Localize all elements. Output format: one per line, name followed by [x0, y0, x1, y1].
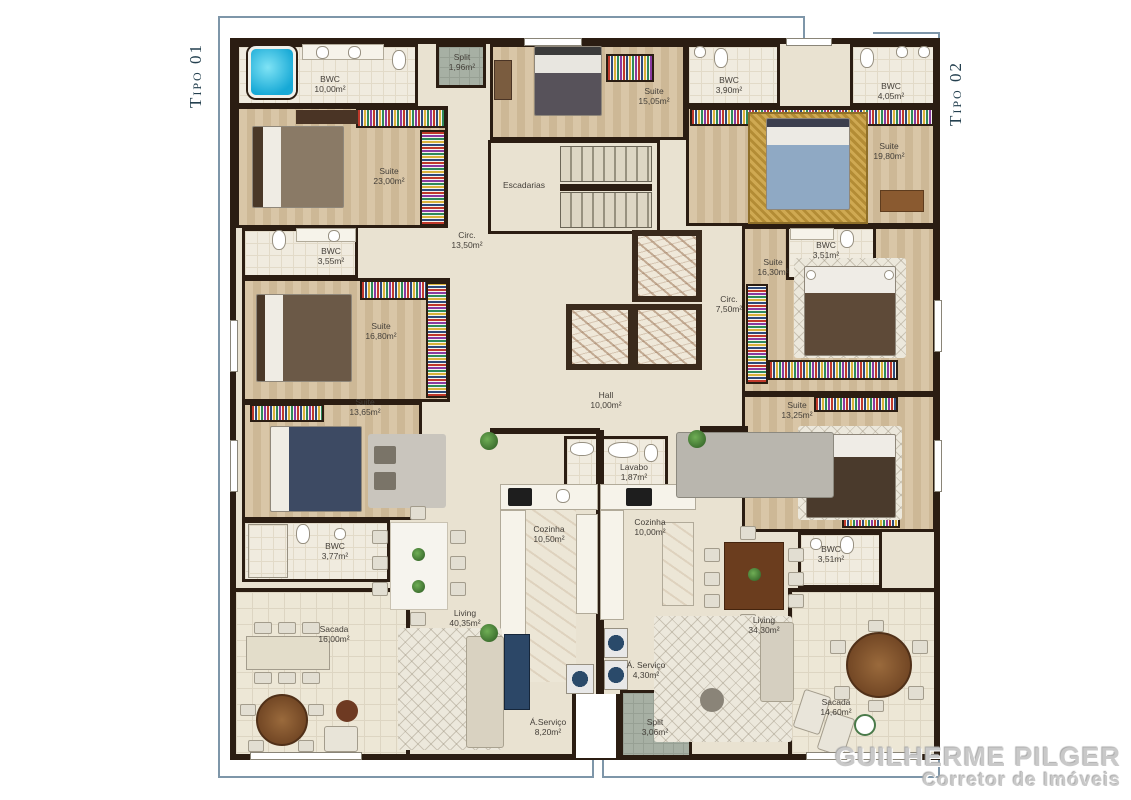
label-bwc390-area: 3,90m²	[716, 85, 742, 95]
table-plant-2	[412, 580, 425, 593]
label-bwc351a-area: 3,51m²	[813, 250, 839, 260]
tipo01-label: Tipo 01	[186, 18, 206, 108]
label-bwc405-name: BWC	[878, 81, 904, 91]
sacada16-pouf	[336, 700, 358, 722]
table-plant-3430	[748, 568, 761, 581]
label-suite2300-name: Suite	[373, 166, 404, 176]
chair-l4035-4	[450, 530, 466, 544]
sacada16-rchair-2	[308, 704, 324, 716]
label-aserv430-name: Á. Serviço	[627, 660, 666, 670]
cooktop-left	[508, 488, 532, 506]
label-bwc-10-area: 10,00m²	[314, 84, 345, 94]
dresser-suite2300	[296, 110, 358, 124]
label-suite2300-area: 23,00m²	[373, 176, 404, 186]
washer-right-1	[604, 628, 628, 658]
label-suite1680-name: Suite	[365, 321, 396, 331]
label-split196-name: Split	[449, 52, 475, 62]
label-suite1980-name: Suite	[873, 141, 904, 151]
label-sacada-16: Sacada16,00m²	[318, 624, 349, 644]
label-escadarias: Escadarias	[503, 180, 545, 190]
bwc377-toilet	[296, 524, 310, 544]
label-circ750-area: 7,50m²	[716, 304, 742, 314]
elevator-shaft-right	[632, 304, 702, 370]
sacada16-table	[246, 636, 330, 670]
sacada16-round-table	[256, 694, 308, 746]
sacada1460-chair-4	[908, 686, 924, 700]
label-hall-area: 10,00m²	[590, 400, 621, 410]
sacada16-chair-2	[278, 622, 296, 634]
label-lavabo-name: Lavabo	[620, 462, 648, 472]
chair-l4035-3	[372, 582, 388, 596]
label-bwc351b-area: 3,51m²	[818, 554, 844, 564]
bwc355-counter	[296, 228, 356, 242]
wardrobe-suite1680-right	[426, 282, 448, 398]
bwc377-shower	[248, 524, 288, 578]
label-living3430-area: 34,30m²	[748, 625, 779, 635]
stairs-treads-lower	[560, 192, 652, 228]
label-bwc355-name: BWC	[318, 246, 344, 256]
wardrobe-suite1505	[606, 54, 654, 82]
sacada1460-chair-6	[868, 700, 884, 712]
dining-table-living4035	[390, 522, 448, 610]
chair-l3430-6	[788, 594, 804, 608]
label-suite1980-area: 19,80m²	[873, 151, 904, 161]
window-top-1	[524, 38, 582, 46]
bwc390-toilet	[714, 48, 728, 68]
sacada1460-chair-2	[912, 640, 928, 654]
label-circ1350-name: Circ.	[451, 230, 482, 240]
label-lavabo-area: 1,87m²	[620, 472, 648, 482]
bwc355-sink	[328, 230, 340, 242]
label-lavabo: Lavabo1,87m²	[620, 462, 648, 482]
bwc10-sink-2	[348, 46, 361, 59]
lamp-suite1630-right	[884, 270, 894, 280]
label-bwc405-area: 4,05m²	[878, 91, 904, 101]
chair-l4035-6	[450, 582, 466, 596]
watermark-role: Corretor de Imóveis	[835, 771, 1121, 792]
wardrobe-suite1325-top	[814, 396, 898, 412]
chair-l3430-1	[704, 548, 720, 562]
label-aserv-820: Á.Serviço8,20m²	[530, 717, 566, 737]
chair-l4035-8	[410, 612, 426, 626]
window-left-1	[230, 320, 238, 372]
bed-suite1630	[804, 266, 896, 356]
chair-l3430-5	[788, 572, 804, 586]
label-suite-1980: Suite19,80m²	[873, 141, 904, 161]
label-split196-area: 1,96m²	[449, 62, 475, 72]
label-suite-1505: Suite15,05m²	[638, 86, 669, 106]
table-plant-1	[412, 548, 425, 561]
label-sacada1460-name: Sacada	[820, 697, 851, 707]
jacuzzi-tub	[248, 46, 296, 98]
wardrobe-suite1630-left	[746, 284, 768, 384]
wardrobe-suite2300-top	[356, 108, 446, 128]
lavabo-basin	[608, 442, 638, 458]
label-split-196: Split1,96m²	[449, 52, 475, 72]
label-split306-area: 3,06m²	[642, 727, 668, 737]
label-escadarias-name: Escadarias	[503, 180, 545, 190]
sacada16-chair-6	[302, 672, 320, 684]
label-circ1350-area: 13,50m²	[451, 240, 482, 250]
wardrobe-suite1365-top	[250, 404, 324, 422]
label-bwc-390: BWC3,90m²	[716, 75, 742, 95]
wardrobe-suite1630-bottom	[768, 360, 898, 380]
label-living3430-name: Living	[748, 615, 779, 625]
armchair-living4035-1	[374, 446, 396, 464]
bwc10-sink-1	[316, 46, 329, 59]
lavabo-toilet	[644, 444, 658, 462]
label-cozinha1000-area: 10,00m²	[634, 527, 665, 537]
label-hall-name: Hall	[590, 390, 621, 400]
label-bwc355-area: 3,55m²	[318, 256, 344, 266]
label-split-306: Split3,06m²	[642, 717, 668, 737]
label-suite1630-name: Suite	[757, 257, 788, 267]
bed-suite1980	[766, 118, 850, 210]
armchair-living4035-2	[374, 472, 396, 490]
sacada16-chair-4	[254, 672, 272, 684]
bwc405-sink-1	[896, 46, 908, 58]
label-suite-2300: Suite23,00m²	[373, 166, 404, 186]
sacada16-rchair-1	[240, 704, 256, 716]
chair-l4035-7	[410, 506, 426, 520]
sacada16-chair-1	[254, 622, 272, 634]
label-aserv430-area: 4,30m²	[627, 670, 666, 680]
bwc390-sink	[694, 46, 706, 58]
bwc351a-toilet	[840, 230, 854, 248]
window-right-1	[934, 300, 942, 352]
label-suite1630-area: 16,30m²	[757, 267, 788, 277]
bwc10-counter	[302, 44, 384, 60]
label-suite-1630: Suite16,30m²	[757, 257, 788, 277]
lavabo-left-basin	[570, 442, 594, 456]
label-circ750-name: Circ.	[716, 294, 742, 304]
sacada16-rchair-4	[298, 740, 314, 752]
bwc351a-counter	[790, 228, 834, 240]
label-suite1365-name: Suite	[349, 397, 380, 407]
label-bwc-355: BWC3,55m²	[318, 246, 344, 266]
label-split306-name: Split	[642, 717, 668, 727]
label-circ-750: Circ.7,50m²	[716, 294, 742, 314]
window-top-2	[786, 38, 832, 46]
label-cozinha-1000: Cozinha10,00m²	[634, 517, 665, 537]
kitchen-left-island	[576, 514, 598, 614]
label-suite1680-area: 16,80m²	[365, 331, 396, 341]
label-sacada-1460: Sacada14,60m²	[820, 697, 851, 717]
sacada16-chair-3	[302, 622, 320, 634]
label-bwc-377: BWC3,77m²	[322, 541, 348, 561]
label-bwc351b-name: BWC	[818, 544, 844, 554]
label-living4035-name: Living	[449, 608, 480, 618]
kitchen-right-counter-col	[600, 510, 624, 620]
stairs-rail	[560, 184, 652, 191]
tipo01-bracket-bottom	[218, 776, 594, 778]
tipo02-label: Tipo 02	[946, 36, 966, 126]
window-left-2	[230, 440, 238, 492]
label-bwc351a-name: BWC	[813, 240, 839, 250]
sacada1460-chair-5	[868, 620, 884, 632]
chair-l3430-3	[704, 594, 720, 608]
washer-right-2	[604, 660, 628, 690]
label-bwc-405: BWC4,05m²	[878, 81, 904, 101]
sacada16-chair-5	[278, 672, 296, 684]
plant-living4035-bottom	[480, 624, 498, 642]
kitchen-right-island	[662, 522, 694, 606]
service-recess	[572, 694, 620, 758]
chair-l3430-4	[788, 548, 804, 562]
floorplan-image: Tipo 01 Tipo 02	[0, 0, 1131, 800]
tipo01-bracket-top	[218, 16, 805, 18]
label-bwc-351-lower: BWC3,51m²	[818, 544, 844, 564]
sofa-living4035	[466, 636, 504, 748]
label-sacada16-name: Sacada	[318, 624, 349, 634]
label-bwc-10: BWC10,00m²	[314, 74, 345, 94]
label-cozinha1050-name: Cozinha	[533, 524, 564, 534]
sacada1460-plate	[854, 714, 876, 736]
label-bwc-351-upper: BWC3,51m²	[813, 240, 839, 260]
watermark: GUILHERME PILGER Corretor de Imóveis	[835, 744, 1121, 792]
tipo02-bracket-top	[873, 32, 940, 34]
label-suite1325-name: Suite	[781, 400, 812, 410]
label-sacada16-area: 16,00m²	[318, 634, 349, 644]
chair-l3430-7	[740, 526, 756, 540]
bwc10-toilet	[392, 50, 406, 70]
label-cozinha1000-name: Cozinha	[634, 517, 665, 527]
chair-l4035-1	[372, 530, 388, 544]
label-suite1365-area: 13,65m²	[349, 407, 380, 417]
elevator-shaft-top	[632, 230, 702, 302]
chair-l3430-2	[704, 572, 720, 586]
label-suite1505-name: Suite	[638, 86, 669, 96]
label-circ-1350: Circ.13,50m²	[451, 230, 482, 250]
chair-l4035-5	[450, 556, 466, 570]
tv-panel-living4035	[504, 634, 530, 710]
label-suite-1325: Suite13,25m²	[781, 400, 812, 420]
label-bwc390-name: BWC	[716, 75, 742, 85]
bed-suite1365	[270, 426, 362, 512]
plant-living4035-top	[480, 432, 498, 450]
label-bwc-10-name: BWC	[314, 74, 345, 84]
bwc355-toilet	[272, 230, 286, 250]
bwc377-sink	[334, 528, 346, 540]
cooktop-right	[626, 488, 652, 506]
label-aserv-430: Á. Serviço4,30m²	[627, 660, 666, 680]
bwc405-toilet	[860, 48, 874, 68]
label-bwc377-area: 3,77m²	[322, 551, 348, 561]
window-right-2	[934, 440, 942, 492]
bwc405-sink-2	[918, 46, 930, 58]
label-suite1325-area: 13,25m²	[781, 410, 812, 420]
sacada16-rchair-3	[248, 740, 264, 752]
bed-suite1505	[534, 46, 602, 116]
pouf-living3430	[700, 688, 724, 712]
sacada1460-round-table	[846, 632, 912, 698]
label-hall: Hall10,00m²	[590, 390, 621, 410]
hall-wall-left	[490, 428, 600, 434]
label-suite-1680: Suite16,80m²	[365, 321, 396, 341]
lamp-suite1630-left	[806, 270, 816, 280]
label-living-3430: Living34,30m²	[748, 615, 779, 635]
label-aserv820-area: 8,20m²	[530, 727, 566, 737]
chair-l4035-2	[372, 556, 388, 570]
kitchen-left-sink	[556, 489, 570, 503]
desk-suite1980	[880, 190, 924, 212]
desk-suite1505	[494, 60, 512, 100]
wardrobe-suite2300-right	[420, 130, 446, 226]
bed-suite2300	[252, 126, 344, 208]
label-cozinha-1050: Cozinha10,50m²	[533, 524, 564, 544]
elevator-shaft-left	[566, 304, 634, 370]
label-living-4035: Living40,35m²	[449, 608, 480, 628]
label-suite1505-area: 15,05m²	[638, 96, 669, 106]
washer-left	[566, 664, 594, 694]
window-sacada16	[250, 752, 362, 760]
label-suite-1365: Suite13,65m²	[349, 397, 380, 417]
label-sacada1460-area: 14,60m²	[820, 707, 851, 717]
bed-suite1680	[256, 294, 352, 382]
tipo01-bracket-left	[218, 16, 220, 778]
label-living4035-area: 40,35m²	[449, 618, 480, 628]
label-bwc377-name: BWC	[322, 541, 348, 551]
plant-living3430	[688, 430, 706, 448]
label-cozinha1050-area: 10,50m²	[533, 534, 564, 544]
stairs-treads-upper	[560, 146, 652, 182]
sacada1460-chair-1	[830, 640, 846, 654]
sacada16-lounge	[324, 726, 358, 752]
watermark-name: GUILHERME PILGER	[835, 744, 1121, 771]
label-aserv820-name: Á.Serviço	[530, 717, 566, 727]
